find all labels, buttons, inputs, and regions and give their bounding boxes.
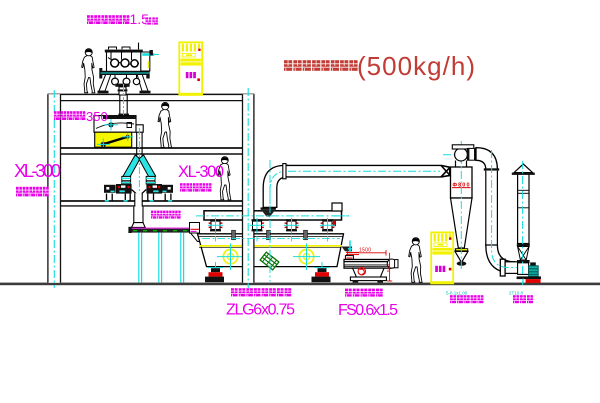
svg-text:ZLG6x0.75: ZLG6x0.75 (226, 302, 295, 319)
svg-text:(500kg/h): (500kg/h) (357, 51, 475, 81)
svg-text:2T10.8: 2T10.8 (509, 291, 524, 296)
svg-text:Φ800: Φ800 (453, 182, 470, 188)
svg-text:350: 350 (86, 109, 108, 124)
svg-text:FS0.6x1.5: FS0.6x1.5 (338, 302, 398, 319)
svg-text:5-8.1x1.00: 5-8.1x1.00 (446, 291, 468, 296)
svg-text:1500: 1500 (359, 248, 371, 254)
svg-text:540: 540 (386, 264, 392, 272)
svg-text:XL-300: XL-300 (178, 163, 224, 181)
svg-text:XL-300: XL-300 (14, 160, 61, 181)
